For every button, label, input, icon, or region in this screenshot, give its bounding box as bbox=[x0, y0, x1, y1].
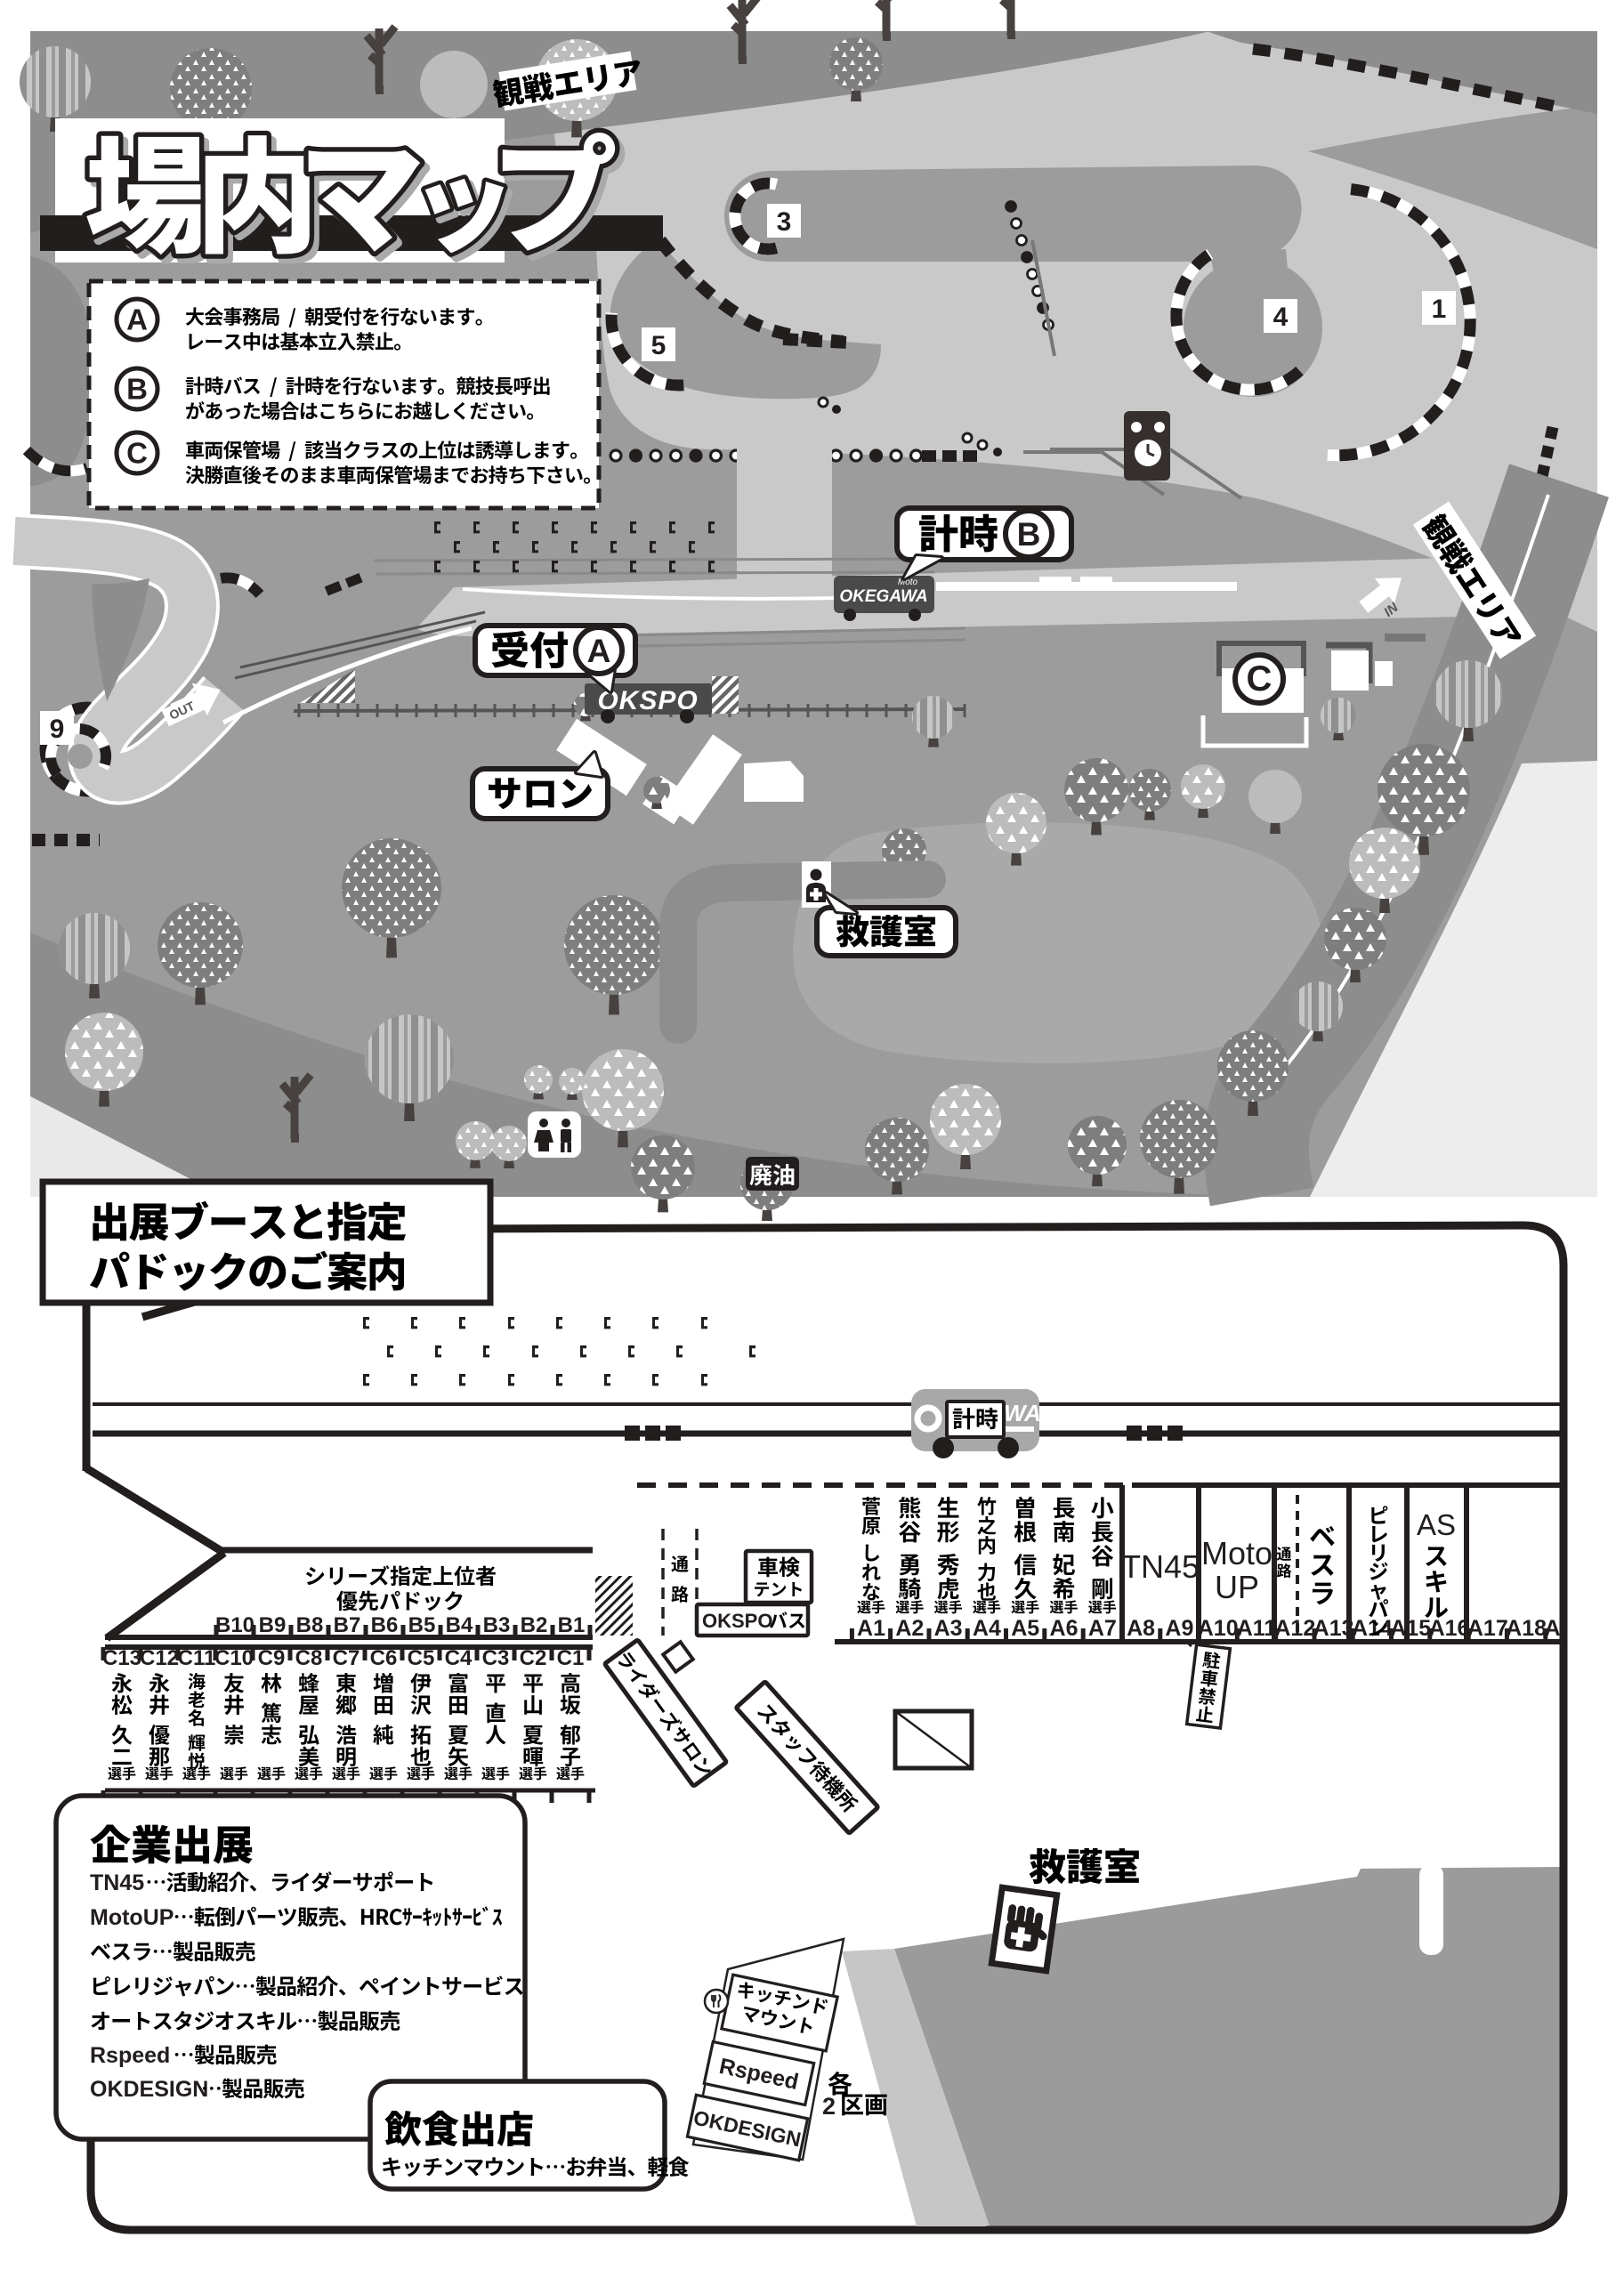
svg-text:A15: A15 bbox=[1390, 1616, 1431, 1641]
svg-text:Moto: Moto bbox=[1201, 1535, 1273, 1571]
svg-text:C12: C12 bbox=[140, 1646, 179, 1670]
svg-text:A1: A1 bbox=[857, 1616, 885, 1641]
svg-text:B7: B7 bbox=[334, 1613, 361, 1637]
svg-text:A6: A6 bbox=[1050, 1616, 1079, 1641]
svg-text:2: 2 bbox=[822, 2093, 836, 2120]
svg-text:C: C bbox=[126, 437, 148, 470]
svg-text:OKDESIGN: OKDESIGN bbox=[90, 2077, 208, 2102]
svg-text:C13: C13 bbox=[102, 1646, 141, 1670]
svg-text:C2: C2 bbox=[520, 1646, 547, 1670]
svg-text:5: 5 bbox=[651, 331, 667, 360]
svg-text:C8: C8 bbox=[295, 1646, 323, 1670]
svg-text:B9: B9 bbox=[259, 1613, 287, 1637]
svg-text:9: 9 bbox=[50, 715, 65, 744]
svg-text:Rspeed: Rspeed bbox=[90, 2043, 170, 2068]
svg-text:C: C bbox=[1247, 659, 1273, 699]
svg-text:A2: A2 bbox=[895, 1616, 924, 1641]
svg-text:OKEGAWA: OKEGAWA bbox=[839, 587, 927, 606]
svg-text:A9: A9 bbox=[1165, 1616, 1193, 1641]
svg-text:C3: C3 bbox=[482, 1646, 510, 1670]
svg-text:UP: UP bbox=[1215, 1569, 1259, 1605]
svg-text:3: 3 bbox=[777, 207, 792, 237]
svg-text:A: A bbox=[126, 303, 148, 336]
svg-text:4: 4 bbox=[1273, 303, 1289, 332]
svg-text:B1: B1 bbox=[558, 1613, 586, 1637]
svg-text:B: B bbox=[1017, 516, 1041, 553]
svg-text:C1: C1 bbox=[557, 1646, 585, 1670]
svg-text:C10: C10 bbox=[214, 1646, 254, 1670]
svg-text:B3: B3 bbox=[483, 1613, 511, 1637]
svg-text:C4: C4 bbox=[445, 1646, 473, 1670]
svg-text:TN45: TN45 bbox=[1121, 1548, 1200, 1585]
svg-text:AS: AS bbox=[1417, 1508, 1456, 1541]
svg-text:A4: A4 bbox=[973, 1616, 1001, 1641]
svg-text:A10: A10 bbox=[1198, 1616, 1239, 1641]
svg-text:C5: C5 bbox=[408, 1646, 435, 1670]
svg-text:B5: B5 bbox=[408, 1613, 436, 1637]
svg-text:A14: A14 bbox=[1352, 1616, 1393, 1641]
svg-text:A11: A11 bbox=[1237, 1616, 1277, 1641]
svg-text:A12: A12 bbox=[1274, 1616, 1315, 1641]
svg-text:1: 1 bbox=[1432, 295, 1447, 324]
svg-text:B: B bbox=[126, 373, 148, 406]
svg-text:A3: A3 bbox=[934, 1616, 963, 1641]
svg-text:TN45: TN45 bbox=[90, 1870, 144, 1895]
svg-text:A17: A17 bbox=[1467, 1616, 1508, 1641]
svg-text:C7: C7 bbox=[333, 1646, 360, 1670]
svg-text:A16: A16 bbox=[1429, 1616, 1470, 1641]
svg-text:B4: B4 bbox=[446, 1613, 473, 1637]
svg-text:A: A bbox=[587, 633, 611, 669]
svg-text:A8: A8 bbox=[1127, 1616, 1155, 1641]
svg-text:A7: A7 bbox=[1088, 1616, 1117, 1641]
svg-text:C9: C9 bbox=[258, 1646, 286, 1670]
svg-text:B10: B10 bbox=[215, 1613, 255, 1637]
svg-text:A18: A18 bbox=[1506, 1616, 1547, 1641]
svg-text:OKSPO: OKSPO bbox=[702, 1610, 772, 1632]
svg-text:B2: B2 bbox=[521, 1613, 548, 1637]
svg-text:A5: A5 bbox=[1011, 1616, 1039, 1641]
svg-text:B8: B8 bbox=[296, 1613, 324, 1637]
svg-text:C11: C11 bbox=[178, 1646, 216, 1670]
svg-text:C6: C6 bbox=[370, 1646, 398, 1670]
svg-text:B6: B6 bbox=[371, 1613, 399, 1637]
svg-text:MotoUP: MotoUP bbox=[90, 1905, 174, 1930]
svg-text:WA: WA bbox=[1004, 1400, 1041, 1426]
